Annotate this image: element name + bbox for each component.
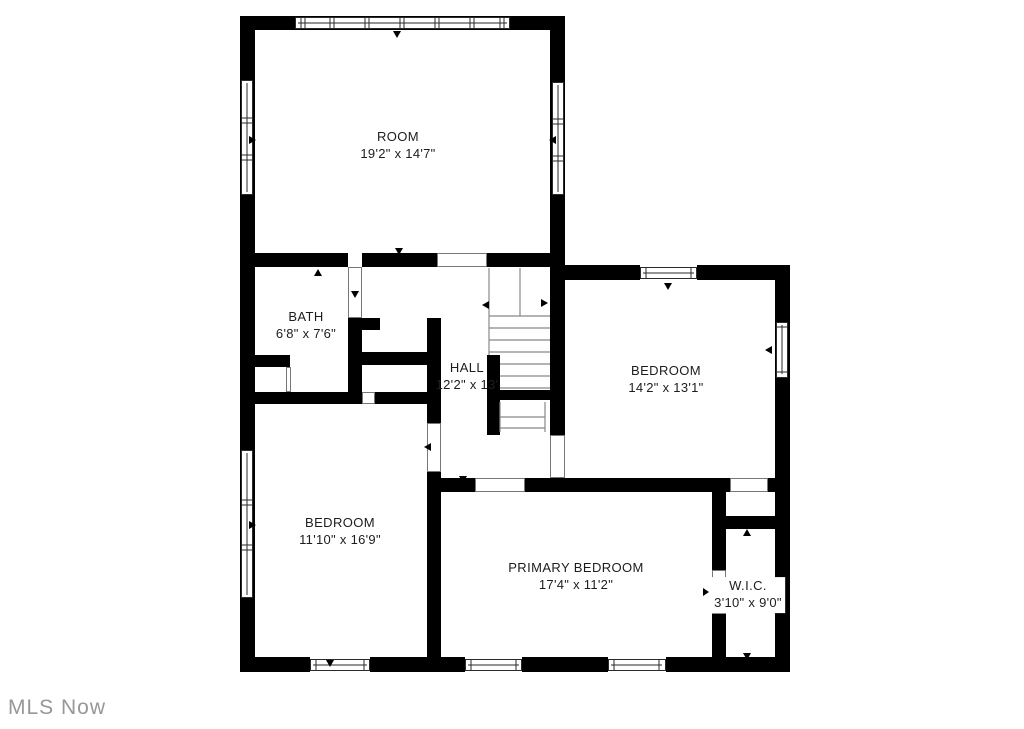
room-label-room: ROOM 19'2" x 14'7" — [360, 129, 435, 163]
room-name: PRIMARY BEDROOM — [508, 560, 644, 577]
room-label-bedroom-bottom-left: BEDROOM 11'10" x 16'9" — [299, 515, 381, 549]
room-dims: 19'2" x 14'7" — [360, 146, 435, 163]
room-dims: 3'10" x 9'0" — [714, 595, 782, 612]
room-dims: 11'10" x 16'9" — [299, 532, 381, 549]
floorplan-drawing — [0, 0, 1024, 729]
floorplan-page: ROOM 19'2" x 14'7" BATH 6'8" x 7'6" HALL… — [0, 0, 1024, 729]
room-name: W.I.C. — [714, 578, 782, 595]
window-bedroom-tr-top — [641, 268, 697, 279]
window-primary-bottom-1 — [466, 660, 522, 671]
room-dims: 17'4" x 11'2" — [508, 577, 644, 594]
window-bedroom-bl-bottom — [311, 660, 370, 671]
room-name: BEDROOM — [299, 515, 381, 532]
room-dims: 6'8" x 7'6" — [276, 326, 336, 343]
room-name: BEDROOM — [628, 363, 703, 380]
watermark-mls-now: MLS Now — [8, 696, 106, 720]
room-label-bedroom-top-right: BEDROOM 14'2" x 13'1" — [628, 363, 703, 397]
room-name: ROOM — [360, 129, 435, 146]
room-name: HALL — [436, 360, 499, 377]
window-bedroom-tr-right — [777, 323, 789, 378]
window-room-top — [296, 18, 510, 29]
room-label-hall: HALL 12'2" x 13' — [436, 360, 499, 394]
window-primary-bottom-2 — [609, 660, 666, 671]
room-label-primary-bedroom: PRIMARY BEDROOM 17'4" x 11'2" — [508, 560, 644, 594]
room-label-bath: BATH 6'8" x 7'6" — [276, 309, 336, 343]
room-label-wic: W.I.C. 3'10" x 9'0" — [711, 577, 785, 613]
room-dims: 14'2" x 13'1" — [628, 380, 703, 397]
room-dims: 12'2" x 13' — [436, 377, 499, 394]
room-name: BATH — [276, 309, 336, 326]
